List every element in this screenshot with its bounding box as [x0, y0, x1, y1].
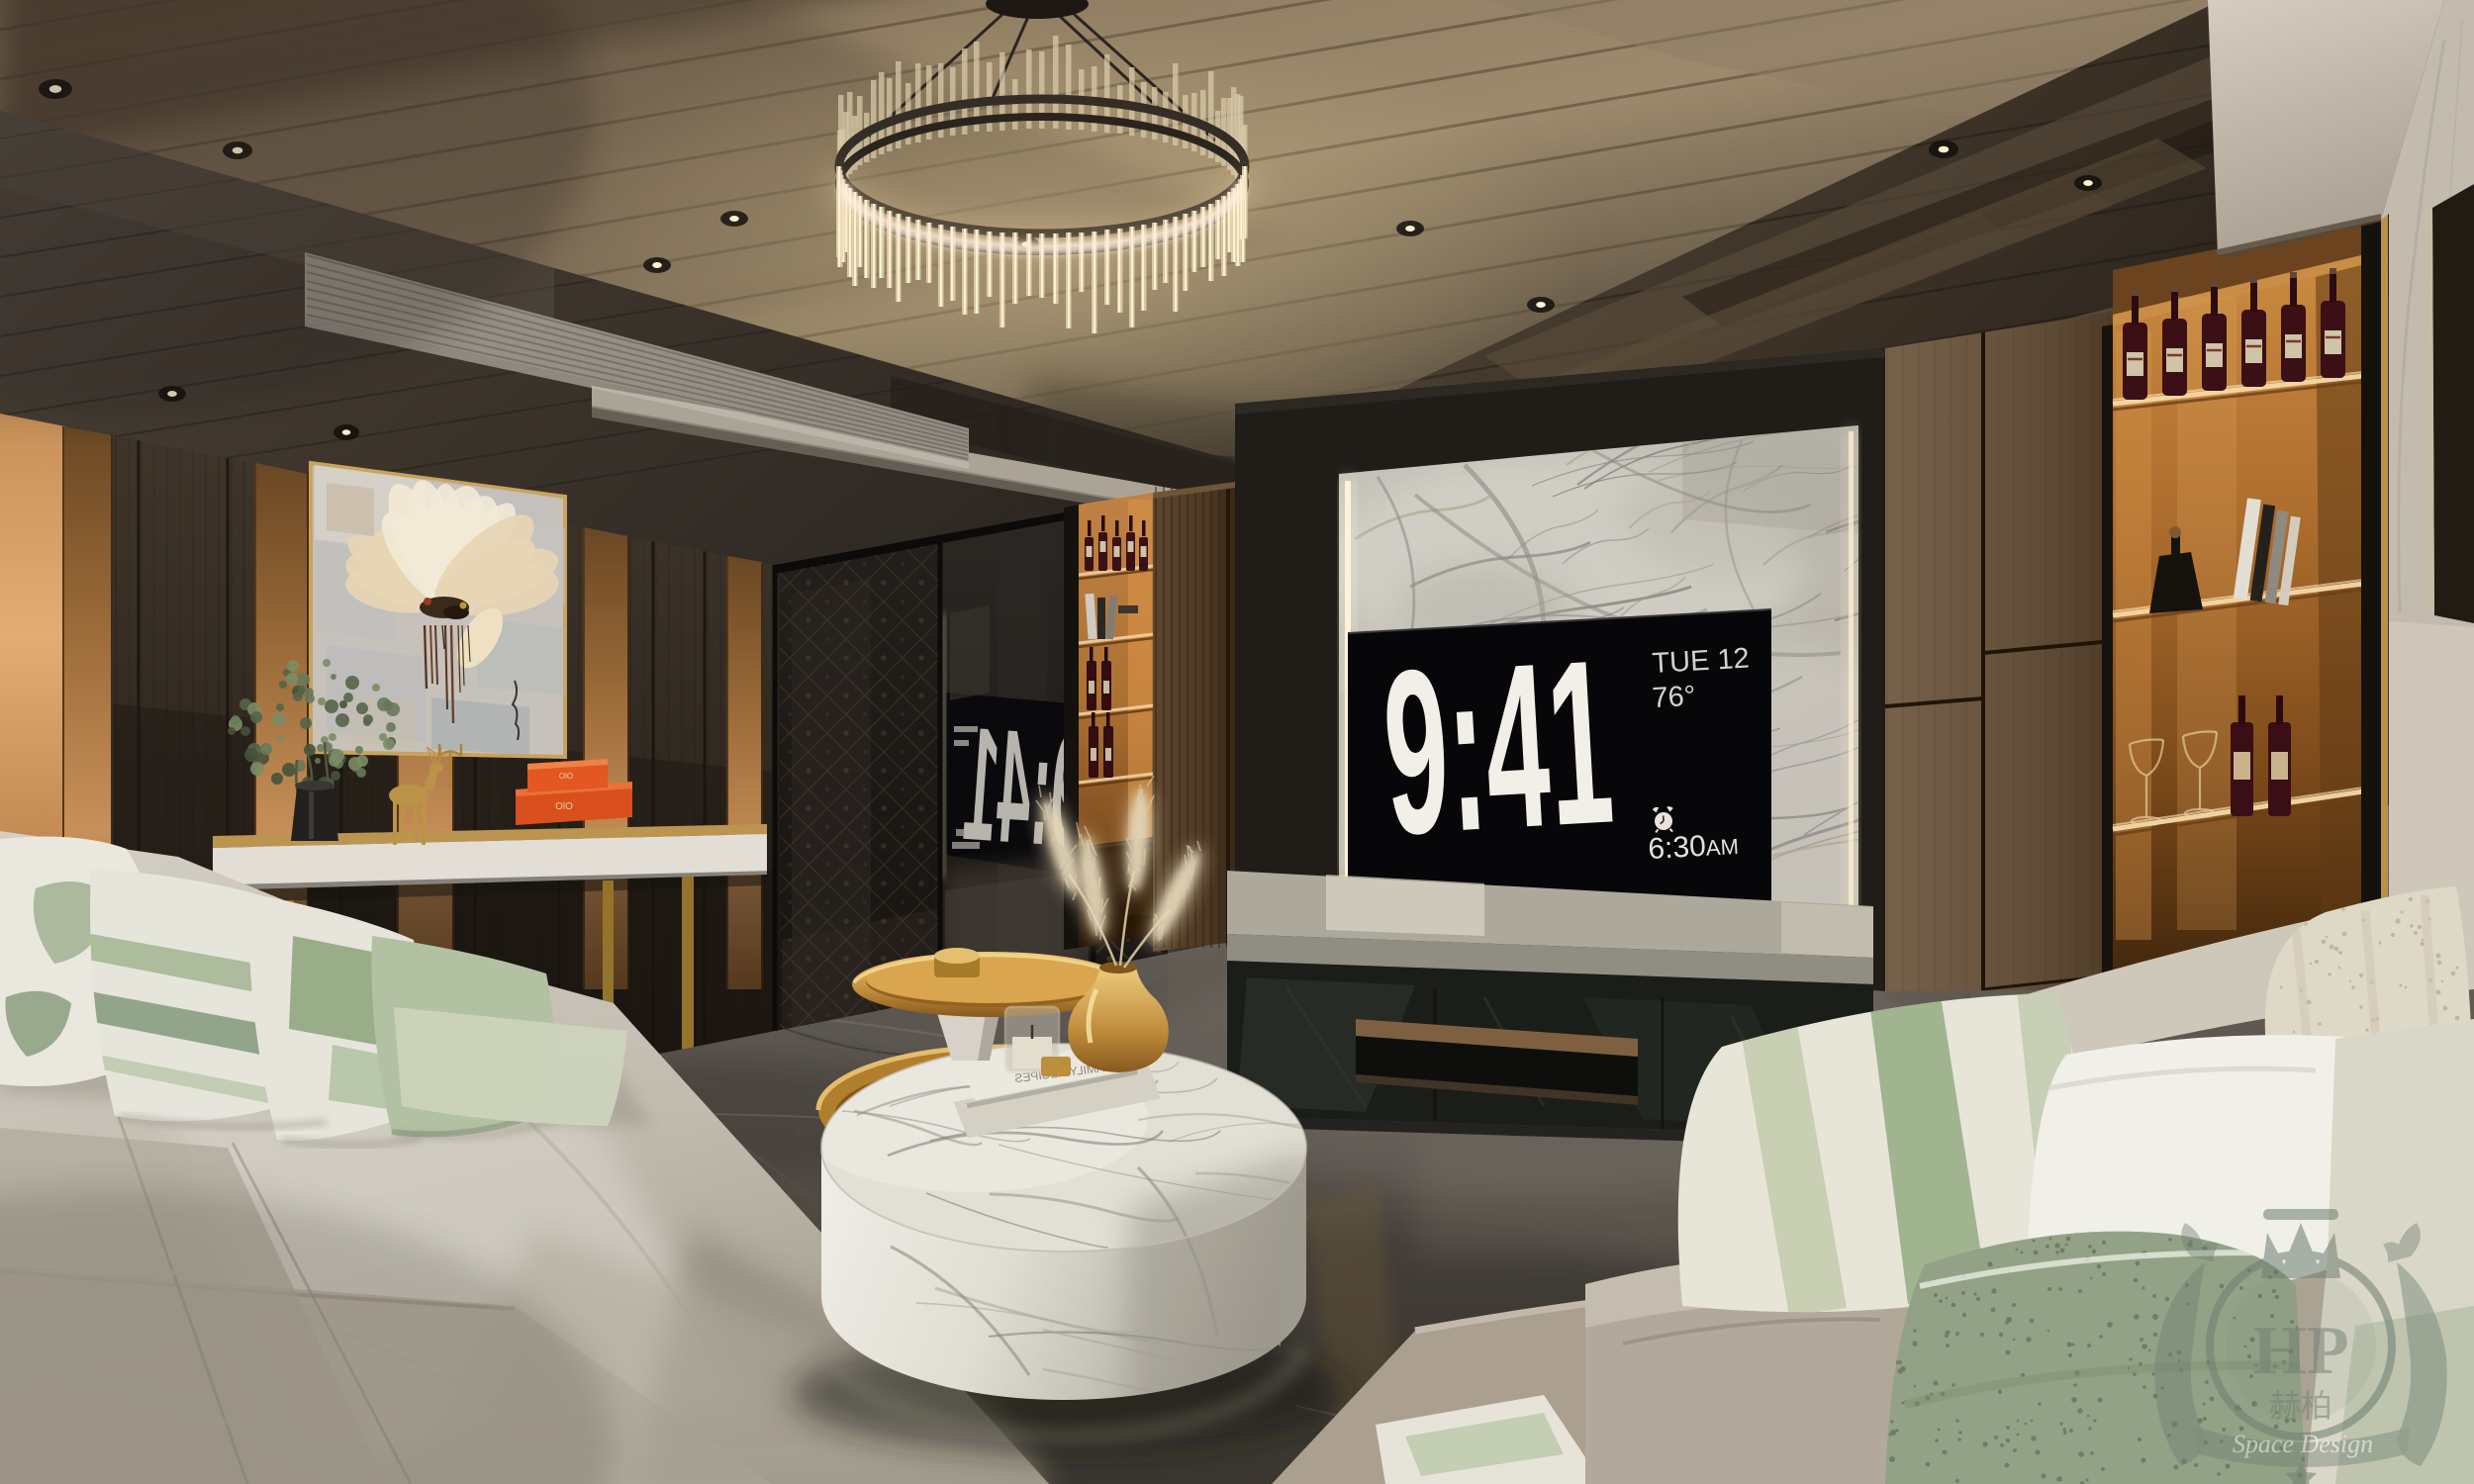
- svg-text:OlO: OlO: [559, 772, 573, 781]
- svg-text:76°: 76°: [1652, 681, 1697, 714]
- svg-text:赫柏: 赫柏: [2269, 1388, 2332, 1424]
- svg-text:9:41: 9:41: [1378, 611, 1618, 884]
- svg-text:OlO: OlO: [555, 801, 573, 812]
- svg-text:TUE 12: TUE 12: [1652, 643, 1751, 680]
- svg-text:HP: HP: [2252, 1313, 2348, 1389]
- svg-text:Space Design: Space Design: [2233, 1430, 2373, 1458]
